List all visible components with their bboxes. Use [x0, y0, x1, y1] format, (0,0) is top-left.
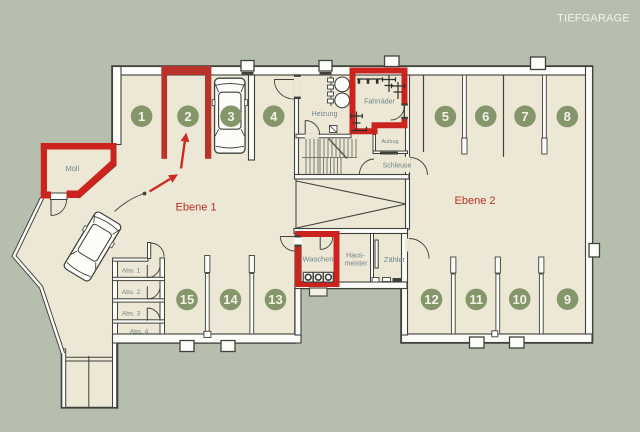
svg-text:14: 14	[223, 292, 238, 307]
svg-text:Müll: Müll	[66, 164, 80, 173]
svg-text:10: 10	[512, 292, 526, 307]
svg-text:3: 3	[227, 109, 234, 124]
svg-text:15: 15	[180, 292, 194, 307]
svg-text:2: 2	[184, 109, 191, 124]
svg-text:11: 11	[469, 292, 483, 307]
svg-text:Haus-: Haus-	[346, 253, 365, 260]
svg-text:Zähler: Zähler	[384, 255, 406, 264]
svg-text:meister: meister	[345, 261, 369, 268]
svg-text:Ebene 1: Ebene 1	[176, 202, 217, 214]
svg-text:7: 7	[521, 109, 528, 124]
svg-text:1: 1	[138, 109, 145, 124]
svg-text:Ebene 2: Ebene 2	[455, 195, 496, 207]
svg-text:13: 13	[268, 292, 282, 307]
svg-text:4: 4	[270, 109, 278, 124]
svg-text:5: 5	[442, 109, 449, 124]
svg-text:8: 8	[564, 109, 571, 124]
svg-text:12: 12	[424, 292, 438, 307]
svg-text:Aufzug: Aufzug	[381, 139, 398, 145]
svg-text:Abs. 3: Abs. 3	[122, 310, 141, 317]
svg-text:Waschen: Waschen	[303, 255, 334, 264]
svg-text:Abs. 2: Abs. 2	[122, 289, 141, 296]
svg-text:6: 6	[482, 109, 489, 124]
svg-text:Abs. 1: Abs. 1	[122, 267, 141, 274]
svg-text:Schleuse: Schleuse	[383, 163, 412, 170]
svg-text:Fahrräder: Fahrräder	[364, 98, 395, 105]
svg-text:TIEFGARAGE: TIEFGARAGE	[557, 12, 630, 24]
svg-text:Abs. 4: Abs. 4	[130, 328, 149, 335]
svg-text:9: 9	[564, 292, 571, 307]
svg-text:Heizung: Heizung	[312, 111, 338, 118]
